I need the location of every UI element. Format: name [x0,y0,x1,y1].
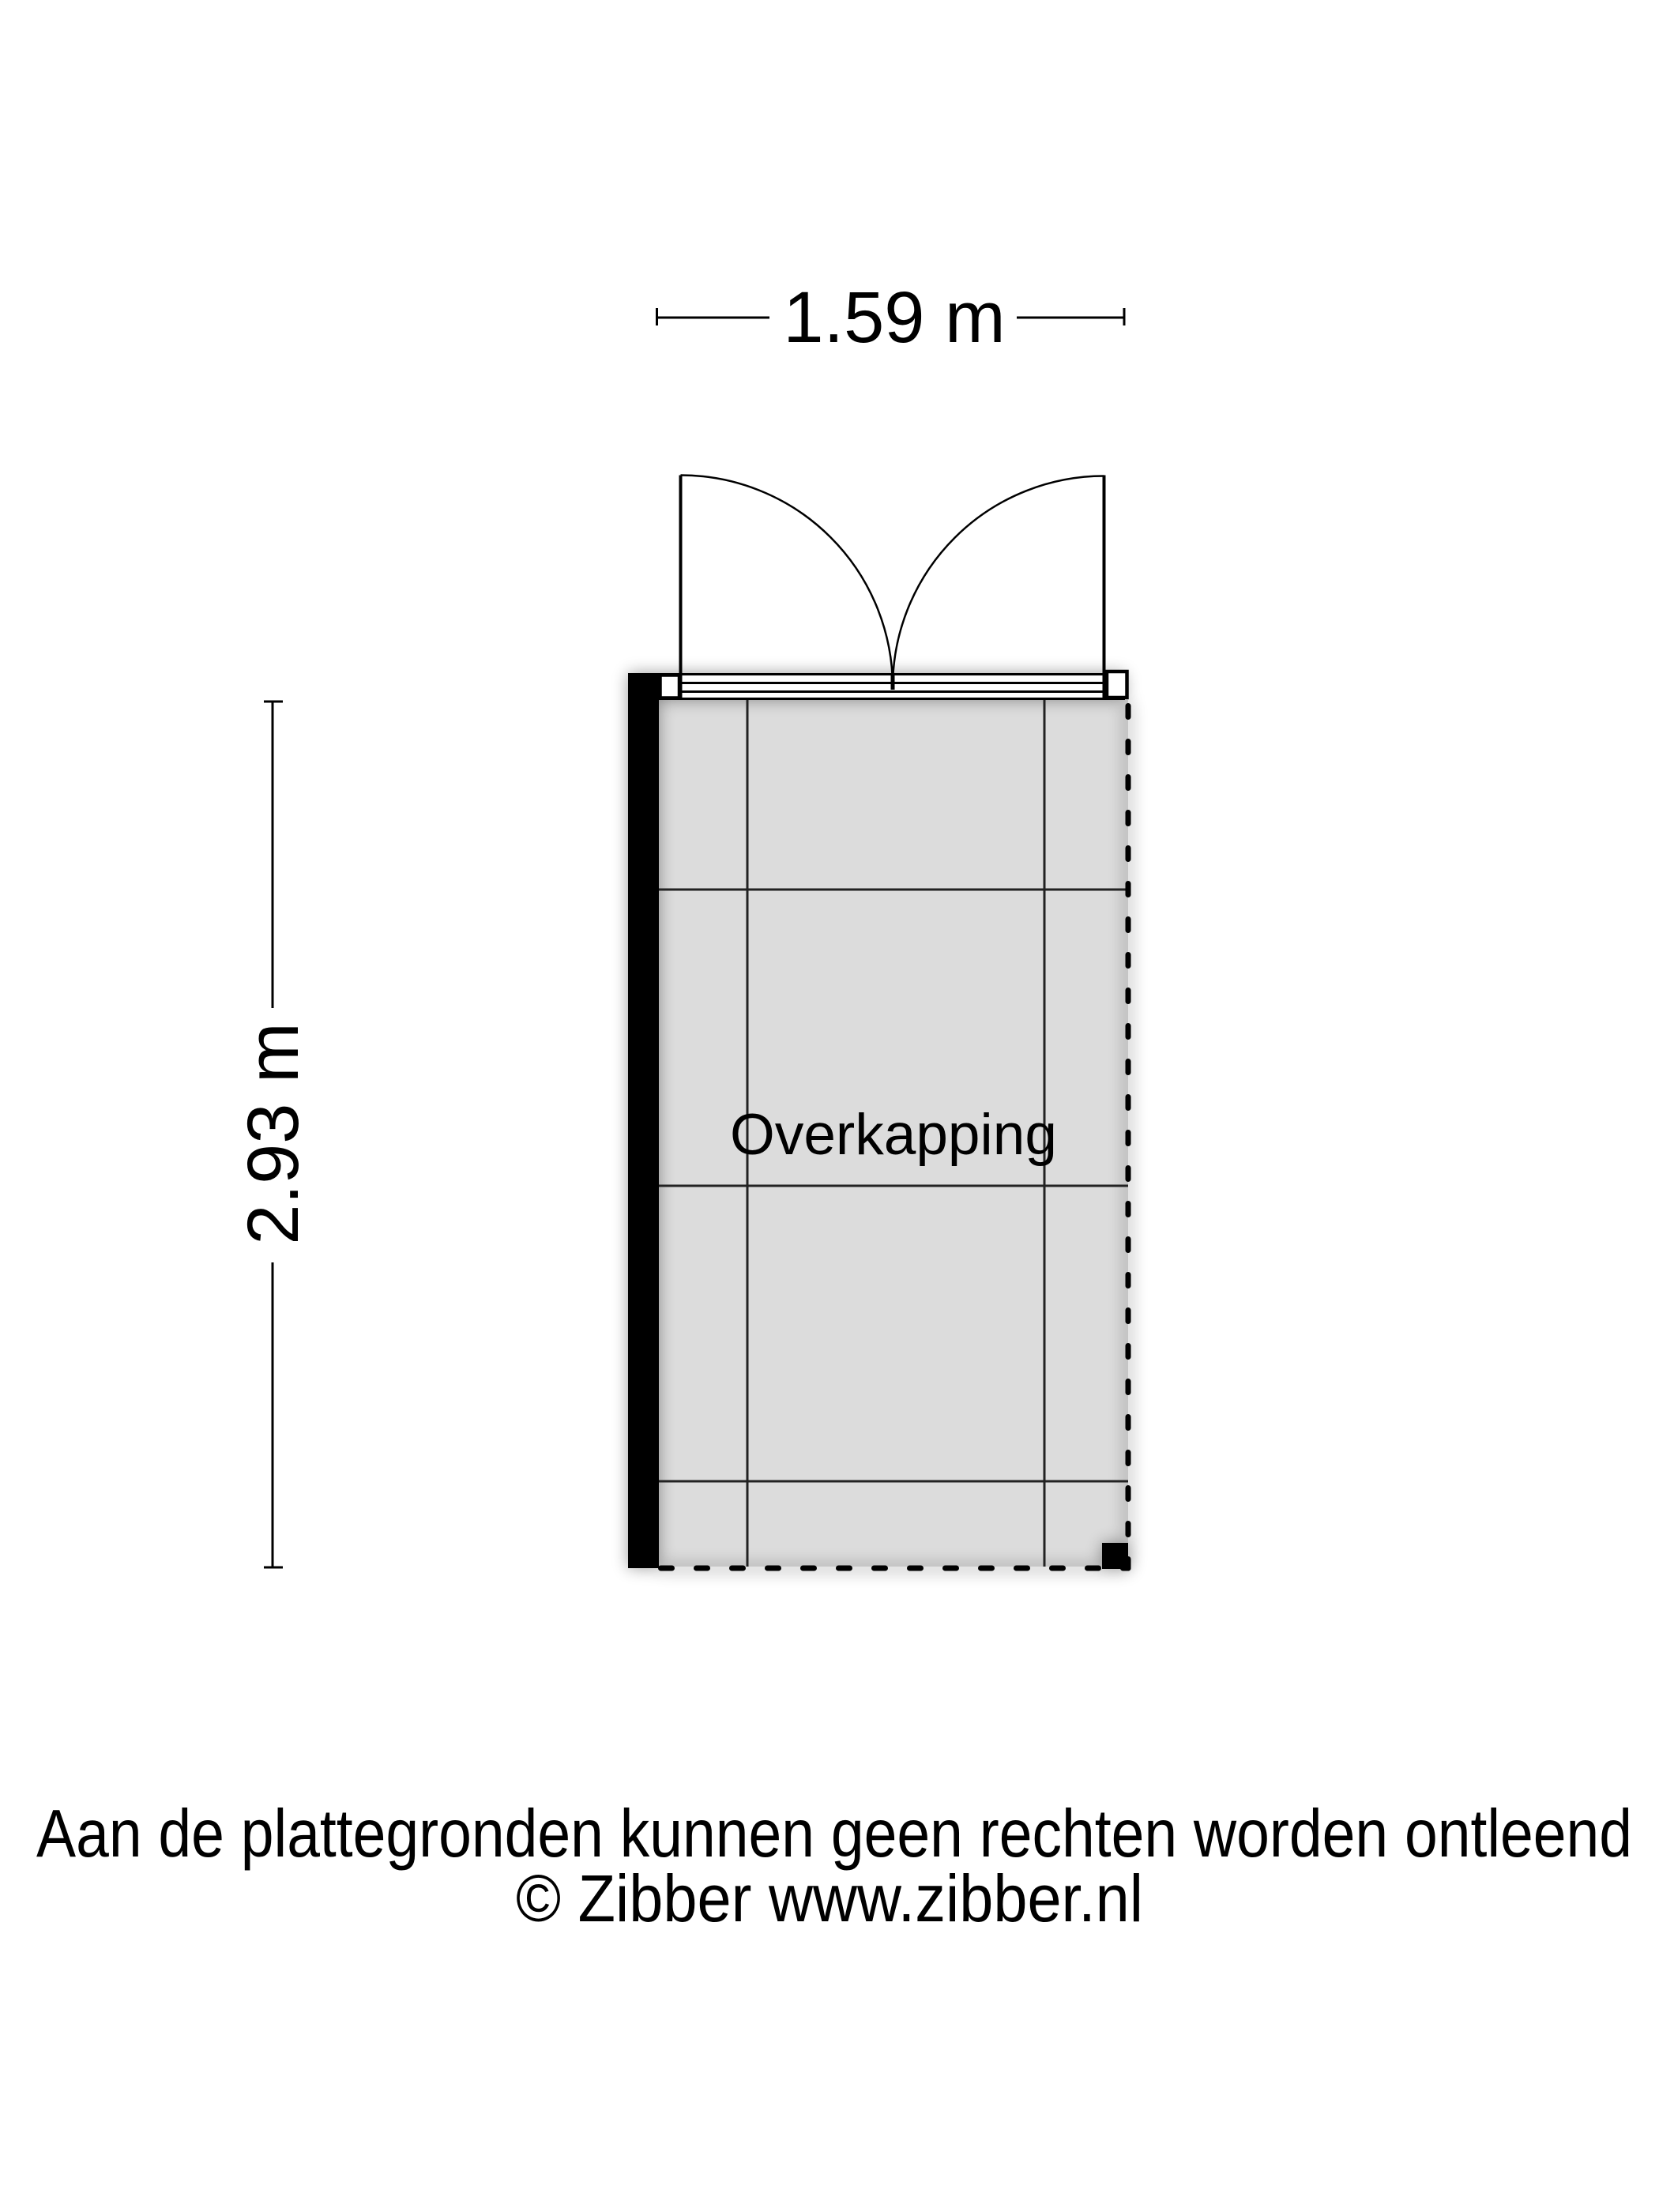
svg-text:© Zibber www.zibber.nl: © Zibber www.zibber.nl [516,1861,1143,1935]
svg-text:Overkapping: Overkapping [730,1103,1057,1167]
svg-text:2.93 m: 2.93 m [233,1022,314,1244]
svg-text:Aan de plattegronden kunnen ge: Aan de plattegronden kunnen geen rechten… [36,1796,1632,1872]
svg-text:1.59 m: 1.59 m [783,277,1005,358]
